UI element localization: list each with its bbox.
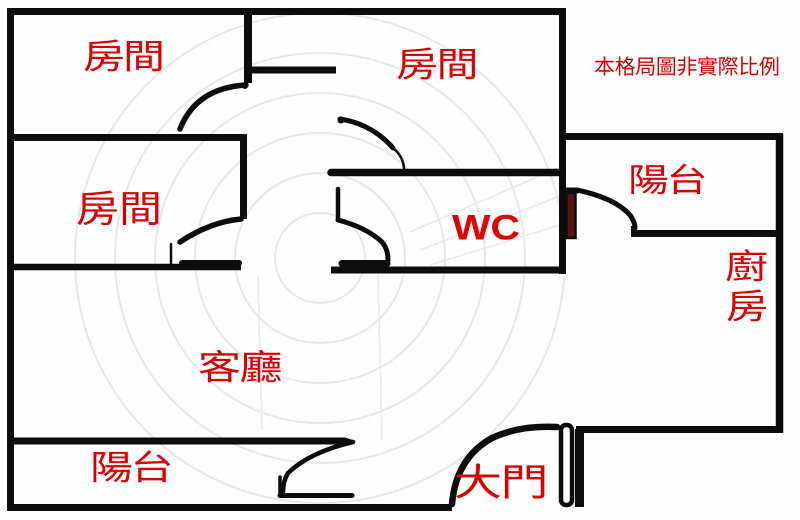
svg-text:WC: WC bbox=[452, 209, 520, 248]
